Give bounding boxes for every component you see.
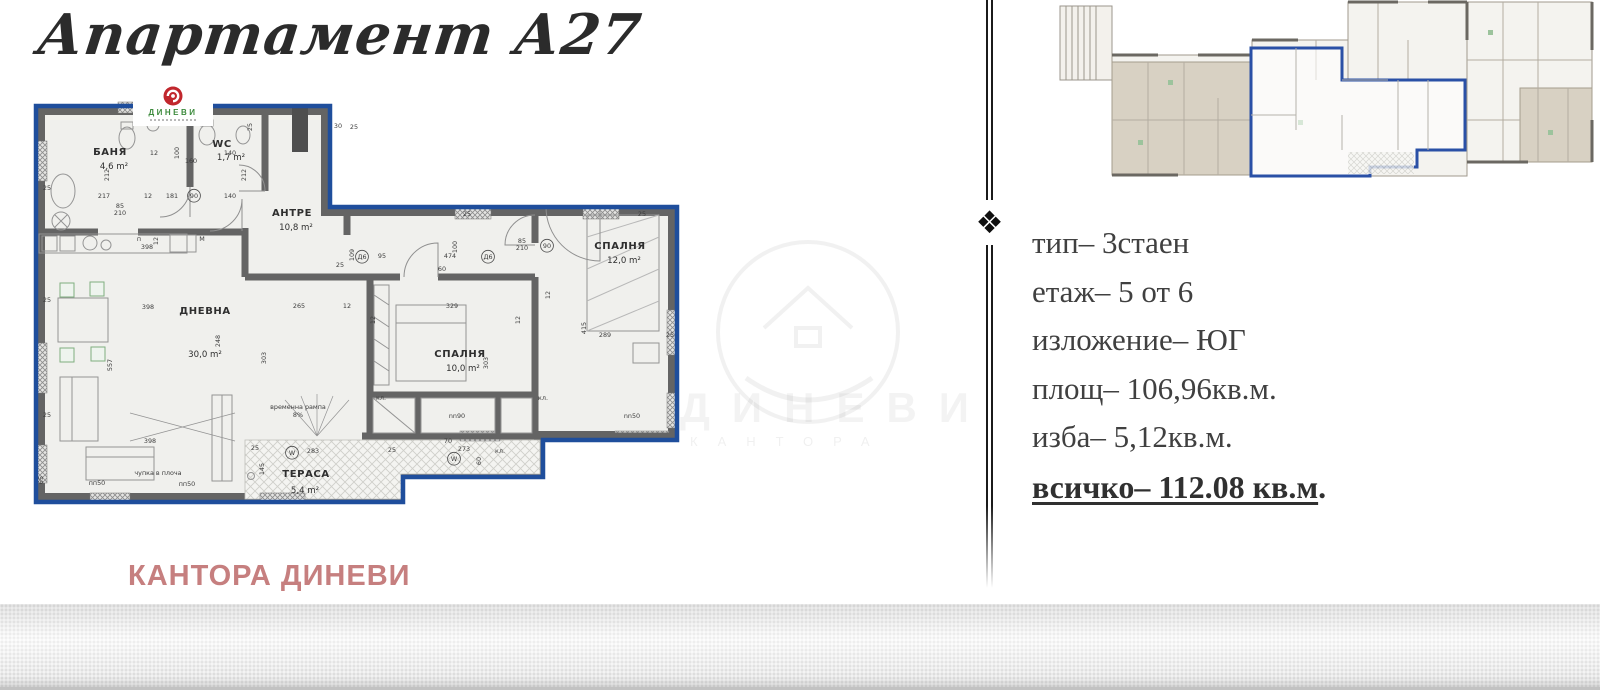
dimension-label: 329 [446,302,458,310]
dimension-label: 398 [144,437,156,445]
room-label: БАНЯ [93,147,127,158]
unit-total-area: всичко– 112.08 кв.м. [1032,462,1326,512]
dimension-label: кл. [376,394,386,402]
dimension-label: 25 [43,184,51,192]
page-title: Апартамент А27 [34,2,522,68]
dimension-label: 8% [293,411,303,419]
room-label: 10,0 m² [446,364,480,374]
dimension-label: 557 [106,359,114,371]
room-label: 5,4 m² [291,486,319,496]
developer-tagline [150,119,196,121]
unit-spec-lines: тип– 3стаенетаж– 5 от 6изложение– ЮГплощ… [1032,219,1326,462]
watermark-text-small: КАНТОРА [690,434,890,449]
dimension-label: 25 [388,446,396,454]
dimension-label: W [451,455,458,463]
dimension-label: 181 [166,192,178,200]
dimension-label: 25 [251,444,259,452]
dimension-label: 60 [475,457,483,465]
developer-logo: ДИНЕВИ [133,85,213,126]
watermark: ДИНЕВИ КАНТОРА [676,232,986,472]
dimension-label: 140 [224,149,236,157]
dimension-label: 210 [516,244,528,252]
room-label: ТЕРАСА [282,469,329,480]
room-label: 12,0 m² [607,256,641,266]
dimension-label: 25 [336,261,344,269]
dimension-label: 12 [144,192,152,200]
dimension-label: 25 [43,411,51,419]
dimension-label: 210 [114,209,126,217]
floorplan: БАНЯ4,6 m²WC1,7 m²АНТРЕ10,8 m²ДНЕВНА30,0… [30,95,690,507]
dimension-label: 265 [293,302,305,310]
room-label: СПАЛНЯ [594,241,645,252]
dimension-label: 12 [369,316,377,324]
dimension-label: 160 [185,157,197,165]
flyer-page: Апартамент А27 ДИНЕВИ КАНТОРА ДИНЕВИ [0,0,1600,690]
room-label: СПАЛНЯ [434,349,485,360]
dimension-label: 25 [666,331,674,339]
stairwell [1060,6,1112,80]
dimension-label: nn90 [449,412,465,420]
dimension-label: 25 [638,210,646,218]
watermark-text-big: ДИНЕВИ [680,384,991,432]
dimension-label: 212 [103,169,111,181]
dimension-label: М [199,235,205,243]
spec-line: изба– 5,12кв.м. [1032,413,1326,462]
dimension-label: 289 [599,331,611,339]
dimension-label: 398 [142,303,154,311]
room-label: ДНЕВНА [179,306,230,317]
dimension-label: 212 [240,169,248,181]
dimension-label: 25 [246,123,254,131]
dimension-label: Д6 [483,253,492,261]
dimension-label: 145 [258,463,266,475]
dimension-label: чупка в плоча [134,469,181,477]
unit-total-area-period: . [1318,469,1326,505]
dimension-label: 25 [350,123,358,131]
divider-line [991,0,993,588]
dimension-label: Д6 [357,253,366,261]
dimension-label: 30 [334,122,342,130]
dimension-label: 70 [444,437,452,445]
dimension-label: 303 [482,357,490,369]
developer-emblem-icon [162,85,184,107]
dimension-label: кл. [495,447,505,455]
dimension-label: 25 [43,296,51,304]
spec-line: площ– 106,96кв.м. [1032,365,1326,414]
dimension-label: 12 [544,291,552,299]
dimension-label: 248 [214,335,222,347]
dimension-label: 283 [307,447,319,455]
dimension-label: 140 [224,192,236,200]
dimension-label: кл. [538,394,548,402]
agency-name: КАНТОРА ДИНЕВИ [128,560,411,593]
spec-line: изложение– ЮГ [1032,316,1326,365]
unit-specs: тип– 3стаенетаж– 5 от 6изложение– ЮГплощ… [1032,219,1326,512]
dimension-label: 109 [348,249,356,261]
dimension-label: 273 [458,445,470,453]
dimension-label: nn50 [624,412,640,420]
dimension-label: 100 [173,147,181,159]
dimension-label: пп50 [89,479,106,487]
floor-overview-plan [1048,0,1600,180]
dimension-label: пп50 [179,480,196,488]
dimension-label: 25 [463,210,471,218]
dimension-label: 90 [190,192,198,200]
unit-total-area-value: всичко– 112.08 кв.м [1032,469,1318,505]
dimension-label: п [137,235,141,243]
adjacent-apartment [1112,62,1252,175]
room-label: 30,0 m² [188,350,222,360]
divider-ornament-icon: ❖ [967,200,1012,245]
divider-line [986,0,988,588]
dimension-label: 217 [98,192,110,200]
dimension-label: 12 [152,237,160,245]
dimension-label: W [289,449,296,457]
adjacent-apartment [1520,88,1592,162]
spec-line: етаж– 5 от 6 [1032,268,1326,317]
texture-band [0,604,1600,690]
room-label: 10,8 m² [279,223,313,233]
dimension-label: 303 [260,352,268,364]
dimension-label: 95 [378,252,386,260]
dimension-label: временна рампа [270,403,326,411]
dimension-label: 60 [438,265,446,273]
dimension-label: 12 [150,149,158,157]
wall-block [292,106,308,152]
developer-name: ДИНЕВИ [148,108,197,117]
room-label: АНТРЕ [272,208,312,219]
dimension-label: 90 [543,242,551,250]
dimension-label: 12 [343,302,351,310]
spec-line: тип– 3стаен [1032,219,1326,268]
dimension-label: 100 [451,241,459,253]
dimension-label: 415 [580,322,588,334]
dimension-label: 12 [514,316,522,324]
